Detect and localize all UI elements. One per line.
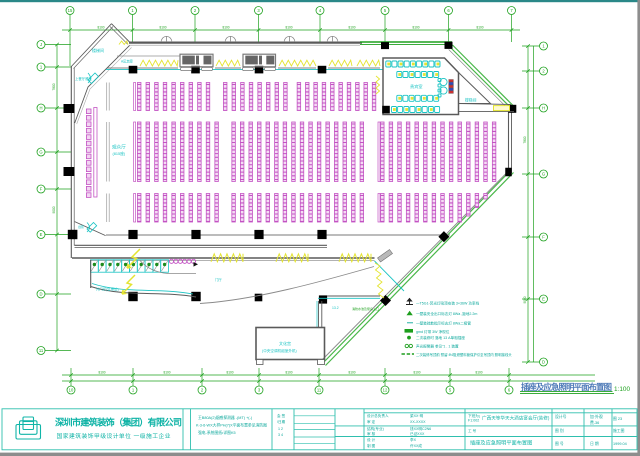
- svg-text:9000: 9000: [52, 206, 56, 213]
- svg-text:8100: 8100: [475, 371, 482, 375]
- svg-text:13.2: 13.2: [332, 306, 339, 310]
- svg-text:8100: 8100: [226, 371, 233, 375]
- svg-text:F: F: [542, 235, 545, 240]
- svg-text:文化宫: 文化宫: [279, 340, 291, 346]
- svg-text:E: E: [542, 297, 545, 302]
- svg-text:制 图: 制 图: [367, 443, 376, 448]
- svg-text:8100: 8100: [98, 371, 105, 375]
- svg-text:G: G: [542, 172, 545, 177]
- svg-text:许XX成: 许XX成: [410, 443, 422, 448]
- svg-text:设计号: 设计号: [555, 414, 567, 419]
- svg-text:门厅: 门厅: [215, 277, 222, 282]
- svg-text:外门厅(售票处): 外门厅(售票处): [96, 287, 119, 292]
- svg-text:1999.04: 1999.04: [613, 442, 627, 446]
- svg-text:一壁装疏散指示标志灯 8Wa二极管: 一壁装疏散指示标志灯 8Wa二极管: [416, 321, 471, 326]
- svg-text:8100: 8100: [348, 26, 355, 30]
- svg-text:结构(专业): 结构(专业): [367, 426, 384, 431]
- svg-text:8100: 8100: [285, 371, 292, 375]
- svg-text:E: E: [40, 232, 43, 237]
- svg-text:设 计: 设 计: [367, 437, 376, 442]
- svg-text:已证XXX: 已证XXX: [410, 431, 425, 436]
- svg-text:加·外观: 加·外观: [590, 414, 603, 419]
- svg-text:K-3-6-WX大样PH(7)X平面布置参见消防图: K-3-6-WX大样PH(7)X平面布置参见消防图: [196, 423, 267, 428]
- svg-text:广西天等华天大酒店宴会厅(装修): 广西天等华天大酒店宴会厅(装修): [482, 415, 550, 422]
- svg-text:一壁装安全出口标志灯 8Wa ,距地2.2m: 一壁装安全出口标志灯 8Wa ,距地2.2m: [416, 311, 477, 316]
- svg-text:11: 11: [39, 348, 44, 353]
- svg-text:审 定: 审 定: [367, 419, 376, 424]
- svg-text:11: 11: [317, 388, 322, 393]
- svg-text:楼梯间: 楼梯间: [92, 47, 104, 53]
- svg-text:台阶: 台阶: [78, 224, 85, 229]
- svg-text:8100: 8100: [222, 26, 229, 30]
- svg-text:8100: 8100: [285, 26, 292, 30]
- svg-text:8100: 8100: [163, 371, 170, 375]
- svg-text:F: F: [40, 187, 43, 192]
- svg-text:国家建筑装饰甲级设计单位 一级施工企业: 国家建筑装饰甲级设计单位 一级施工企业: [57, 432, 171, 440]
- svg-text:下班为」: 下班为」: [468, 413, 482, 418]
- svg-text:8100: 8100: [348, 371, 355, 375]
- svg-text:gmd 灯带 3W 净现位: gmd 灯带 3W 净现位: [416, 329, 450, 334]
- svg-text:声光报警器 参见"1 . 1 装置: 声光报警器 参见"1 . 1 装置: [416, 344, 459, 349]
- svg-text:1 2: 1 2: [278, 427, 283, 431]
- svg-text:7800: 7800: [523, 136, 527, 143]
- svg-text:二次装修时 落地 13 A单相插座: 二次装修时 落地 13 A单相插座: [416, 335, 465, 340]
- svg-text:会 签: 会 签: [277, 413, 286, 418]
- svg-text:F1:002: F1:002: [468, 419, 479, 423]
- svg-text:钱XX明C2N6: 钱XX明C2N6: [410, 426, 431, 431]
- svg-text:图 23: 图 23: [613, 417, 622, 421]
- svg-text:王B80A(2)烟感探测器 -(MT) +(-): 王B80A(2)烟感探测器 -(MT) +(-): [198, 415, 253, 420]
- svg-text:1:100: 1:100: [614, 386, 630, 393]
- svg-text:(中央空调机组室外机): (中央空调机组室外机): [262, 348, 297, 353]
- svg-text:XX-XXXX: XX-XXXX: [410, 420, 426, 424]
- svg-text:A区走廊: A区走廊: [121, 59, 134, 64]
- svg-text:H: H: [39, 106, 42, 111]
- svg-text:深圳市建筑装饰（集团）有限公司: 深圳市建筑装饰（集团）有限公司: [55, 417, 182, 428]
- svg-text:12: 12: [383, 388, 388, 393]
- svg-text:H: H: [542, 106, 545, 111]
- svg-text:3 4: 3 4: [278, 433, 283, 437]
- svg-text:8100: 8100: [97, 26, 104, 30]
- svg-text:工 号: 工 号: [468, 428, 477, 433]
- svg-text:J: J: [40, 42, 42, 47]
- svg-text:9000: 9000: [523, 296, 527, 303]
- svg-text:梁XX·明: 梁XX·明: [410, 413, 424, 418]
- svg-text:G: G: [39, 150, 42, 155]
- svg-text:(815座): (815座): [113, 151, 126, 156]
- svg-text:消防水池及泵房入口: 消防水池及泵房入口: [352, 306, 379, 311]
- svg-text:插座及应急照明平面布置图: 插座及应急照明平面布置图: [521, 382, 612, 392]
- svg-text:强电-系统图纸•详图K5: 强电-系统图纸•详图K5: [198, 430, 236, 435]
- svg-text:费-36: 费-36: [590, 420, 599, 425]
- svg-text:D: D: [542, 360, 545, 365]
- svg-text:图 别: 图 别: [555, 428, 564, 433]
- svg-text:插座及应急照明平面布置图: 插座及应急照明平面布置图: [470, 439, 532, 447]
- svg-text:施工图: 施工图: [613, 428, 625, 433]
- svg-text:8100: 8100: [412, 26, 419, 30]
- svg-text:日 期: 日 期: [590, 441, 599, 446]
- svg-text:设计总负责人: 设计总负责人: [367, 413, 389, 418]
- svg-text:8100: 8100: [413, 371, 420, 375]
- svg-text:7800: 7800: [52, 83, 56, 90]
- svg-text:二次装修吊顶前 预留-Ф4阻燃塑料管保护引至吊顶内 照明接线: 二次装修吊顶前 预留-Ф4阻燃塑料管保护引至吊顶内 照明接线头: [416, 352, 512, 357]
- svg-text:上餐厅雅座: 上餐厅雅座: [75, 76, 93, 81]
- svg-text:审 核: 审 核: [367, 431, 376, 436]
- svg-text:10: 10: [69, 388, 74, 393]
- svg-text:贵宾室: 贵宾室: [410, 83, 423, 90]
- svg-text:8100: 8100: [476, 26, 483, 30]
- svg-text:15: 15: [68, 8, 73, 13]
- svg-text:李X: 李X: [410, 437, 417, 442]
- svg-text:/日期: /日期: [277, 419, 286, 424]
- svg-text:一T5G1-荧光灯吸顶安装 3×36W 功率线: 一T5G1-荧光灯吸顶安装 3×36W 功率线: [416, 301, 480, 306]
- svg-text:图 号: 图 号: [555, 441, 564, 446]
- svg-text:楼梯间: 楼梯间: [465, 98, 477, 103]
- svg-text:8100: 8100: [159, 26, 166, 30]
- svg-text:D: D: [39, 292, 42, 297]
